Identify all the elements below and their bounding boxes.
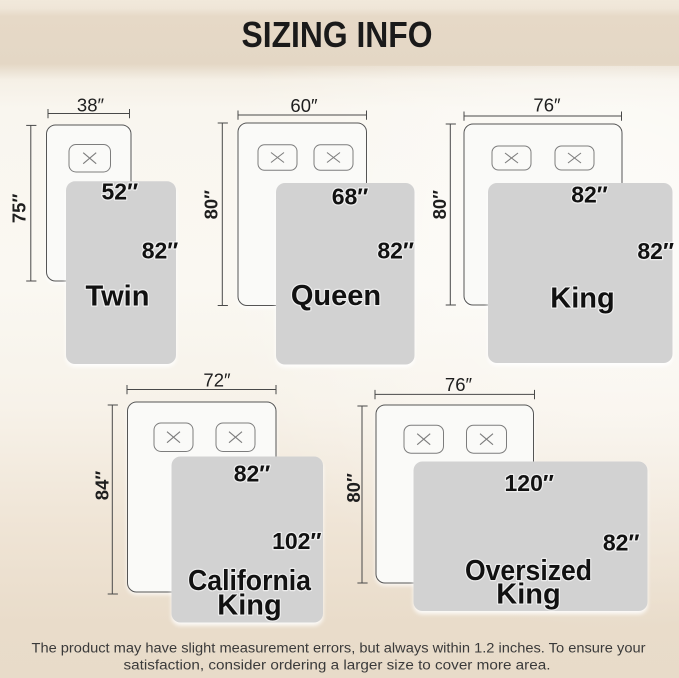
svg-text:80″: 80″ [343, 473, 364, 503]
svg-text:82″: 82″ [377, 238, 414, 264]
svg-text:52″: 52″ [101, 179, 138, 205]
svg-text:satisfaction, consider orderin: satisfaction, consider ordering a larger… [124, 658, 551, 673]
svg-text:76″: 76″ [533, 95, 561, 116]
svg-text:King: King [217, 590, 281, 622]
svg-text:82″: 82″ [603, 530, 640, 556]
svg-text:The product may have slight me: The product may have slight measurement … [32, 641, 647, 656]
svg-text:68″: 68″ [332, 184, 369, 210]
svg-text:82″: 82″ [234, 461, 271, 487]
svg-text:SIZING INFO: SIZING INFO [242, 14, 433, 55]
svg-text:Queen: Queen [291, 280, 381, 312]
svg-text:120″: 120″ [504, 470, 553, 496]
svg-text:102″: 102″ [272, 528, 321, 554]
svg-text:82″: 82″ [142, 238, 179, 264]
svg-text:76″: 76″ [445, 374, 473, 395]
svg-text:60″: 60″ [290, 95, 318, 116]
svg-text:King: King [496, 579, 560, 611]
svg-text:72″: 72″ [203, 369, 231, 390]
svg-text:Twin: Twin [86, 281, 150, 313]
svg-text:King: King [550, 283, 614, 315]
svg-text:82″: 82″ [571, 182, 608, 208]
svg-text:75″: 75″ [9, 194, 30, 224]
svg-text:80″: 80″ [201, 190, 222, 220]
svg-text:38″: 38″ [77, 95, 105, 116]
svg-text:80″: 80″ [429, 190, 450, 220]
svg-text:84″: 84″ [91, 471, 112, 501]
svg-text:82″: 82″ [637, 238, 674, 264]
